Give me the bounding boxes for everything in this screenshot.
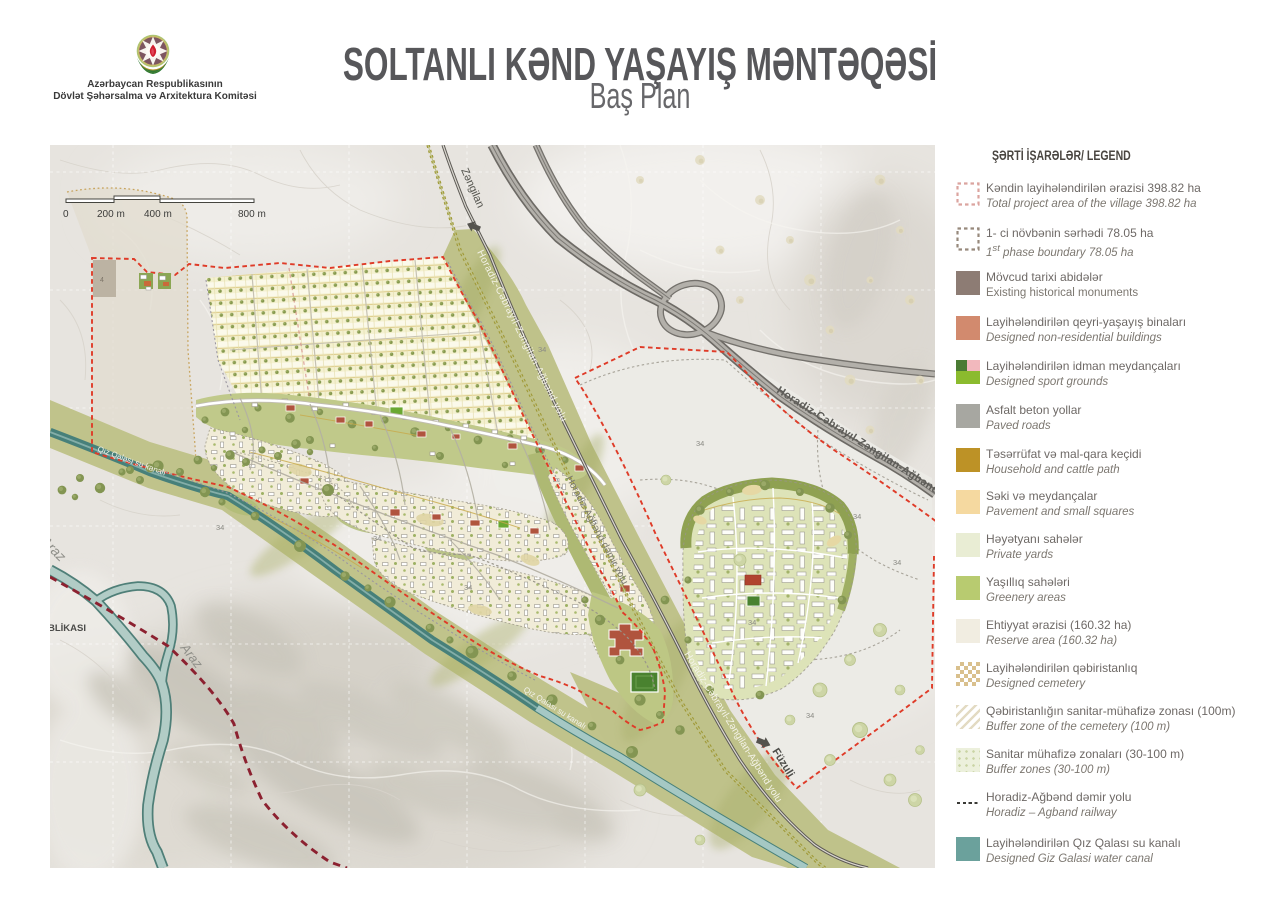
svg-text:0: 0 (63, 209, 69, 220)
svg-text:BLİKASI: BLİKASI (48, 623, 86, 634)
svg-text:34: 34 (748, 618, 756, 627)
svg-text:34: 34 (464, 583, 472, 592)
svg-text:34: 34 (893, 558, 901, 567)
svg-text:34: 34 (373, 534, 381, 543)
svg-text:34: 34 (696, 439, 704, 448)
svg-text:34: 34 (853, 512, 861, 521)
svg-text:34: 34 (216, 523, 224, 532)
svg-text:200 m: 200 m (97, 209, 125, 220)
svg-text:34: 34 (806, 711, 814, 720)
svg-text:800 m: 800 m (238, 209, 266, 220)
svg-text:400 m: 400 m (144, 209, 172, 220)
svg-text:4: 4 (100, 277, 104, 284)
svg-text:34: 34 (538, 345, 546, 354)
